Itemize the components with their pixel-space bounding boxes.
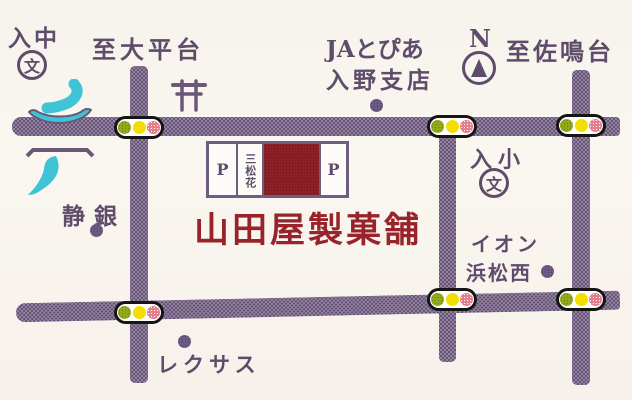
traffic-light-icon: [114, 116, 164, 139]
shop-building: P 三松花 P: [206, 141, 349, 198]
compass-north-icon: [462, 51, 496, 85]
shop-name: 山田屋製菓舗: [194, 202, 422, 253]
landmark-dot: [370, 99, 383, 112]
school-icon: 文: [17, 50, 47, 80]
signal-green-lamp: [560, 293, 573, 306]
traffic-light-icon: [556, 288, 606, 311]
compass-needle: [468, 57, 490, 79]
to-daiheidai-label: 至大平台: [92, 30, 204, 65]
signal-red-lamp: [460, 120, 473, 133]
irino-jhs-label: 入中: [8, 19, 60, 53]
shop-building-fill: [264, 144, 319, 195]
landmark-dot: [541, 265, 554, 278]
signal-green-lamp: [118, 306, 131, 319]
landmark-dot: [90, 224, 103, 237]
irino-branch-label: 入野支店: [326, 61, 434, 95]
signal-yellow-lamp: [575, 293, 588, 306]
signal-red-lamp: [589, 119, 602, 132]
school-mark-text: 文: [24, 53, 40, 77]
parking-left-label: P: [209, 144, 236, 195]
road-middle-vertical: [439, 130, 456, 362]
signal-yellow-lamp: [446, 293, 459, 306]
signal-red-lamp: [589, 293, 602, 306]
traffic-light-icon: [114, 301, 164, 324]
ja-topia-label: JAとぴあ: [326, 30, 424, 64]
landmark-dot: [178, 335, 191, 348]
signal-red-lamp: [460, 293, 473, 306]
aeon-label-line1: イオン: [471, 228, 540, 257]
north-label: N: [469, 24, 491, 53]
school-mark-text: 文: [486, 171, 502, 195]
road-top-horizontal: [12, 117, 620, 136]
signal-green-lamp: [118, 121, 131, 134]
signal-red-lamp: [147, 121, 160, 134]
torii-icon: [170, 77, 208, 113]
tenant-label: 三松花: [236, 144, 264, 195]
traffic-light-icon: [427, 288, 477, 311]
signal-green-lamp: [560, 119, 573, 132]
road-left-vertical: [130, 66, 148, 383]
lexus-label: レクサス: [157, 349, 261, 379]
aeon-label-line2: 浜松西: [466, 257, 532, 286]
boat-icon: [28, 79, 92, 125]
signal-yellow-lamp: [133, 306, 146, 319]
signal-yellow-lamp: [133, 121, 146, 134]
access-map: P 三松花 P 山田屋製菓舗 N 入中 文 至大平台 至佐鳴台 JAとぴあ 入野…: [0, 0, 632, 400]
signal-red-lamp: [147, 306, 160, 319]
signal-green-lamp: [431, 293, 444, 306]
traffic-light-icon: [427, 115, 477, 138]
school-icon: 文: [479, 168, 509, 198]
traffic-light-icon: [556, 114, 606, 137]
road-bottom-horizontal: [16, 291, 620, 323]
to-sanarudai-label: 至佐鳴台: [506, 32, 614, 67]
signal-green-lamp: [431, 120, 444, 133]
signal-yellow-lamp: [446, 120, 459, 133]
parking-right-label: P: [319, 144, 346, 195]
signal-yellow-lamp: [575, 119, 588, 132]
bridge-river-icon: [25, 145, 95, 203]
